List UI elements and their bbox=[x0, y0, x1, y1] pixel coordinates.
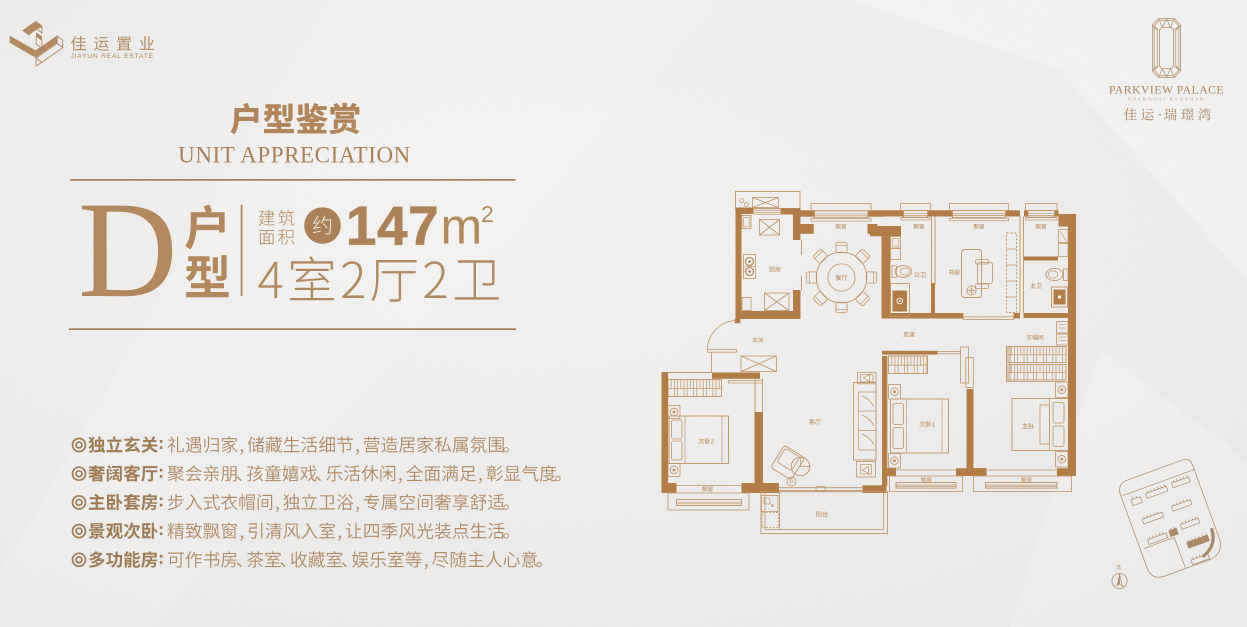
svg-text:2: 2 bbox=[481, 201, 494, 227]
svg-text:PARKVIEW PALACE: PARKVIEW PALACE bbox=[1109, 84, 1224, 97]
svg-text:SHANGHAI BAOSHAN: SHANGHAI BAOSHAN bbox=[1128, 96, 1206, 101]
svg-text:147: 147 bbox=[346, 196, 439, 257]
svg-text:UNIT APPRECIATION: UNIT APPRECIATION bbox=[178, 143, 411, 168]
svg-text:D: D bbox=[78, 173, 178, 326]
svg-text:JIAYUN REAL ESTATE: JIAYUN REAL ESTATE bbox=[71, 53, 154, 60]
svg-text:m: m bbox=[441, 199, 483, 255]
